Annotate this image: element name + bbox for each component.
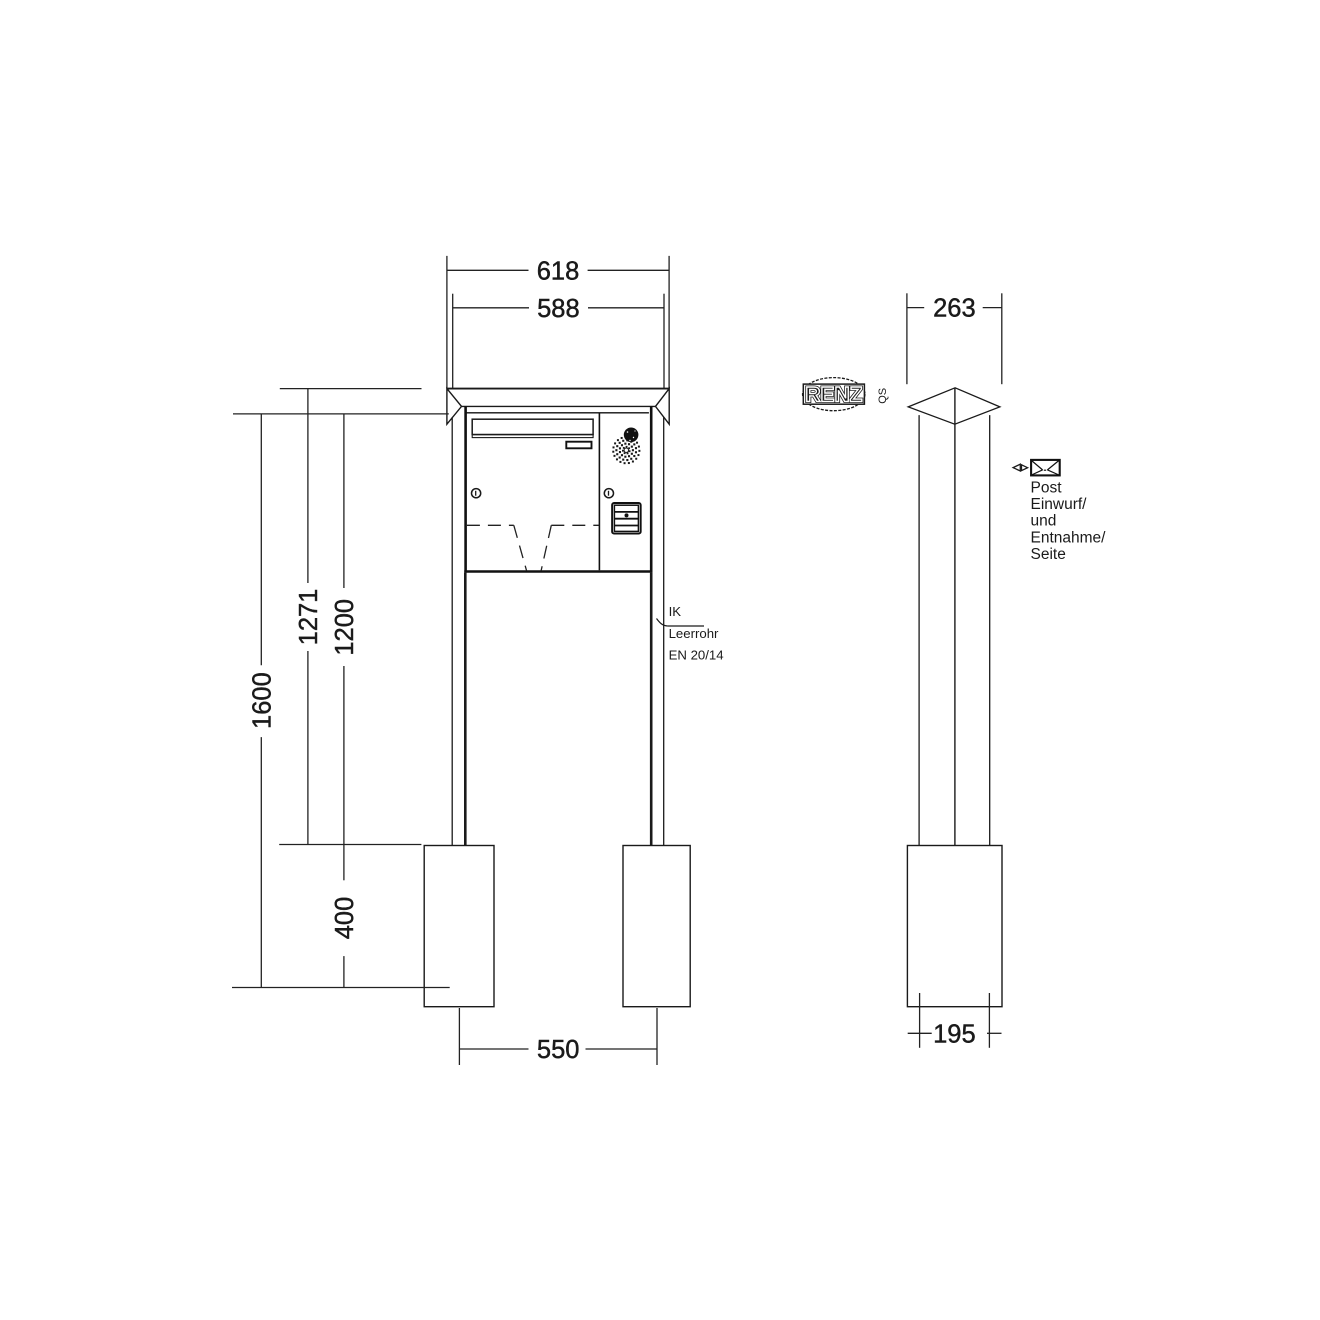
svg-text:550: 550: [537, 1036, 580, 1064]
svg-text:EN 20/14: EN 20/14: [669, 648, 724, 663]
svg-text:Post: Post: [1031, 479, 1063, 496]
svg-text:QS: QS: [877, 388, 889, 404]
svg-text:1271: 1271: [295, 589, 323, 646]
svg-text:und: und: [1031, 513, 1057, 530]
svg-text:588: 588: [537, 295, 580, 323]
svg-text:195: 195: [933, 1020, 976, 1048]
svg-text:400: 400: [331, 897, 359, 940]
svg-text:618: 618: [537, 257, 580, 285]
svg-text:IK: IK: [669, 604, 682, 619]
svg-text:1600: 1600: [248, 672, 276, 729]
svg-text:Leerrohr: Leerrohr: [669, 626, 719, 641]
svg-text:Entnahme/: Entnahme/: [1031, 529, 1107, 546]
svg-text:Seite: Seite: [1031, 546, 1066, 563]
svg-text:1200: 1200: [331, 599, 359, 656]
svg-text:263: 263: [933, 295, 976, 323]
svg-text:RENZ: RENZ: [805, 384, 862, 407]
svg-text:Einwurf/: Einwurf/: [1031, 496, 1088, 513]
